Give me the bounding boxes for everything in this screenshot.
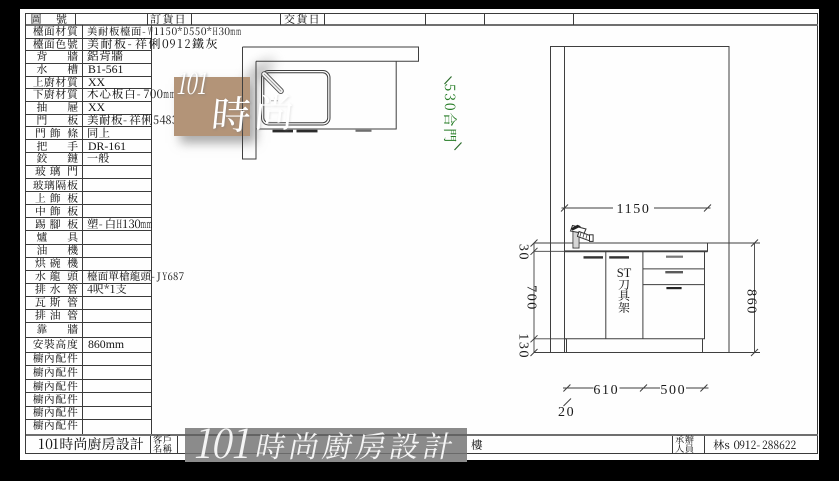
svg-text:500: 500 [660, 383, 686, 398]
svg-text:XX: XX [88, 100, 106, 114]
svg-text:30: 30 [516, 244, 531, 261]
svg-text:860: 860 [744, 289, 759, 315]
svg-text:20: 20 [558, 405, 575, 420]
svg-text:XX: XX [88, 75, 106, 89]
svg-text:130: 130 [516, 333, 531, 359]
svg-text:ST: ST [617, 266, 632, 280]
svg-text:1150: 1150 [617, 202, 651, 217]
svg-text:DR-161: DR-161 [88, 139, 126, 153]
svg-text:700: 700 [524, 285, 539, 311]
svg-text:610: 610 [593, 383, 619, 398]
svg-text:860mm: 860mm [88, 337, 124, 351]
